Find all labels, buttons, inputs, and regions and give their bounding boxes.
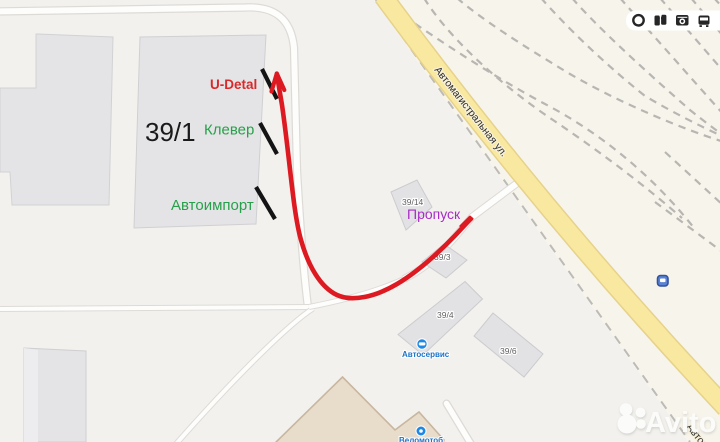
svg-text:Автоимпорт: Автоимпорт xyxy=(171,197,254,214)
svg-text:Avito: Avito xyxy=(645,407,716,439)
svg-text:Пропуск: Пропуск xyxy=(407,206,461,222)
svg-text:U-Detal: U-Detal xyxy=(210,77,257,92)
svg-text:Клевер: Клевер xyxy=(204,122,254,139)
svg-text:Автосервис: Автосервис xyxy=(402,350,450,359)
svg-text:Веломотоб: Веломотоб xyxy=(399,436,443,442)
svg-text:39/4: 39/4 xyxy=(437,310,454,320)
svg-text:39/1: 39/1 xyxy=(145,117,196,147)
svg-text:39/6: 39/6 xyxy=(500,346,517,356)
